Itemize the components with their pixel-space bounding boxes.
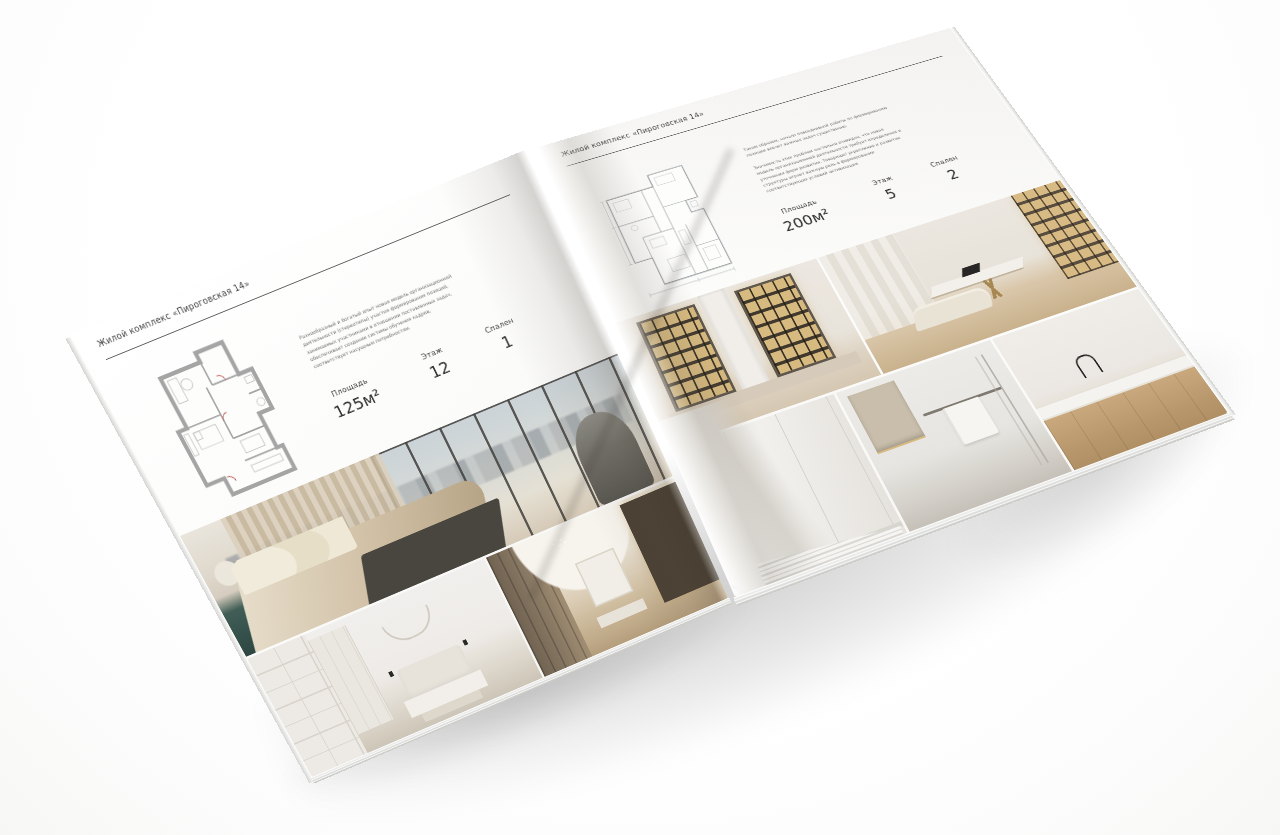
scene: Жилой комплекс «Пироговская 14»	[0, 0, 1280, 835]
black-faucet	[1072, 352, 1103, 378]
spec-area: Площадь 125м²	[320, 372, 388, 424]
lit-bookshelf	[1011, 180, 1119, 279]
sconce	[463, 639, 469, 645]
floor-plan-200	[592, 159, 745, 308]
spec-area: Площадь 200м²	[770, 195, 837, 237]
spec-bedrooms: Спален 2	[921, 151, 979, 188]
wall-garland	[381, 605, 438, 649]
spec-floor: Этаж 12	[408, 340, 466, 388]
spec-bedrooms: Спален 1	[475, 312, 533, 360]
sconce	[388, 671, 394, 677]
page-header: Жилой комплекс «Пироговская 14»	[560, 110, 705, 158]
spec-floor: Этаж 5	[859, 170, 917, 208]
